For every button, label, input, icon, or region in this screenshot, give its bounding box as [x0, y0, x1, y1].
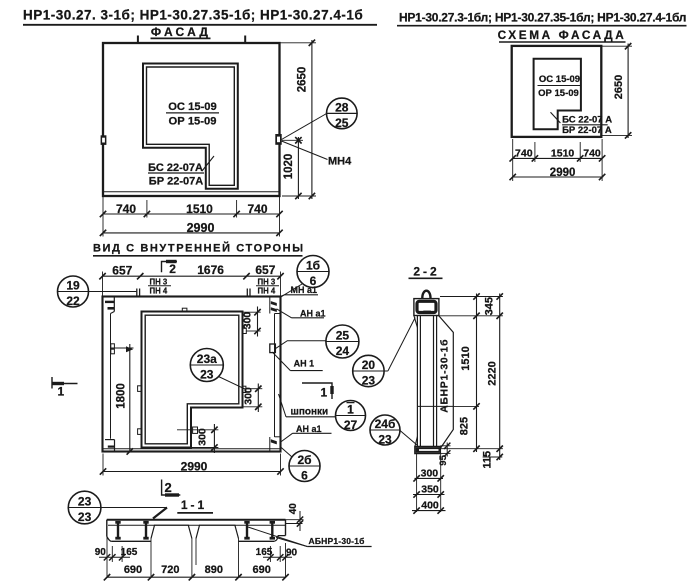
svg-text:ВИД С ВНУТРЕННЕЙ СТОРОНЫ: ВИД С ВНУТРЕННЕЙ СТОРОНЫ [93, 242, 305, 255]
svg-text:2: 2 [169, 262, 176, 276]
svg-text:23: 23 [78, 510, 92, 524]
svg-text:шпонки: шпонки [291, 406, 329, 417]
svg-text:НР1-30.27. 3-1б; НР1-30.27.35: НР1-30.27. 3-1б; НР1-30.27.35-1б; НР1-30… [23, 8, 363, 23]
svg-text:АБНР1-30-1б: АБНР1-30-1б [309, 536, 365, 546]
svg-text:27: 27 [344, 418, 358, 432]
svg-text:1: 1 [321, 386, 328, 400]
svg-text:2: 2 [165, 480, 172, 495]
svg-text:1-1: 1-1 [181, 498, 207, 512]
svg-text:24б: 24б [375, 417, 396, 431]
svg-text:2б: 2б [297, 453, 311, 467]
svg-text:АН а1: АН а1 [300, 308, 326, 318]
svg-text:БС 22-07 А: БС 22-07 А [562, 114, 612, 125]
svg-text:1: 1 [58, 385, 65, 399]
svg-text:740: 740 [116, 202, 136, 216]
svg-text:115: 115 [482, 451, 494, 469]
svg-text:20: 20 [362, 358, 376, 372]
svg-text:90: 90 [95, 547, 107, 558]
svg-text:2990: 2990 [187, 221, 215, 235]
svg-text:АН 1: АН 1 [294, 358, 315, 368]
svg-text:165: 165 [121, 547, 138, 558]
svg-text:1510: 1510 [551, 147, 575, 159]
svg-text:400: 400 [421, 500, 439, 512]
svg-text:740: 740 [247, 202, 267, 216]
svg-text:300: 300 [242, 387, 254, 405]
svg-text:СХЕМА ФАСАДА: СХЕМА ФАСАДА [498, 28, 627, 42]
svg-text:1510: 1510 [460, 346, 472, 370]
svg-text:300: 300 [421, 467, 439, 479]
svg-text:ФАСАД: ФАСАД [151, 25, 211, 39]
svg-text:690: 690 [253, 564, 271, 576]
svg-text:1: 1 [347, 403, 354, 417]
svg-text:23: 23 [362, 374, 376, 388]
svg-text:ОС 15-09: ОС 15-09 [168, 101, 217, 113]
svg-text:ОС 15-09: ОС 15-09 [539, 74, 580, 85]
svg-text:25: 25 [336, 329, 350, 343]
svg-text:1800: 1800 [115, 383, 127, 409]
svg-text:МН4: МН4 [328, 155, 352, 167]
svg-text:2220: 2220 [486, 361, 498, 385]
svg-text:23: 23 [78, 495, 92, 509]
svg-text:19: 19 [66, 279, 80, 293]
svg-text:25: 25 [335, 116, 349, 130]
svg-text:40: 40 [288, 503, 299, 515]
svg-text:890: 890 [205, 564, 223, 576]
svg-text:ОР 15-09: ОР 15-09 [538, 88, 579, 99]
svg-text:ОР 15-09: ОР 15-09 [169, 116, 217, 128]
svg-text:2-2: 2-2 [413, 264, 439, 278]
svg-text:2990: 2990 [181, 460, 208, 474]
svg-text:95: 95 [438, 454, 449, 465]
svg-text:1510: 1510 [186, 202, 213, 216]
svg-text:ПН 3: ПН 3 [258, 277, 276, 286]
svg-text:6: 6 [301, 469, 308, 483]
svg-text:23а: 23а [197, 352, 217, 366]
svg-text:740: 740 [583, 147, 601, 159]
svg-text:657: 657 [255, 263, 275, 277]
svg-text:300: 300 [196, 428, 208, 446]
svg-text:БС 22-07А: БС 22-07А [148, 162, 203, 174]
svg-text:345: 345 [483, 297, 495, 315]
svg-text:ПН 3: ПН 3 [150, 277, 168, 286]
svg-text:165: 165 [256, 547, 273, 558]
svg-text:720: 720 [161, 564, 179, 576]
svg-text:БР 22-07 А: БР 22-07 А [562, 125, 612, 136]
svg-text:ПН 4: ПН 4 [150, 287, 168, 296]
svg-text:1676: 1676 [197, 263, 224, 277]
svg-text:690: 690 [124, 564, 142, 576]
svg-text:28: 28 [335, 100, 349, 114]
svg-text:825: 825 [459, 417, 471, 435]
svg-text:2650: 2650 [297, 67, 309, 93]
svg-text:657: 657 [112, 263, 132, 277]
svg-text:ПН 4: ПН 4 [258, 287, 276, 296]
svg-text:1б: 1б [306, 259, 320, 273]
svg-text:МН а1: МН а1 [291, 285, 318, 295]
svg-text:1020: 1020 [283, 154, 295, 180]
svg-text:90: 90 [286, 547, 298, 558]
svg-text:2990: 2990 [550, 167, 576, 179]
svg-text:АН а1: АН а1 [296, 424, 322, 434]
svg-text:АБНР1-30-1б: АБНР1-30-1б [439, 339, 451, 413]
svg-text:НР1-30.27.3-1бл; НР1-30.27.35-: НР1-30.27.3-1бл; НР1-30.27.35-1бл; НР1-3… [399, 11, 686, 25]
svg-text:23: 23 [200, 368, 214, 382]
svg-text:БР 22-07А: БР 22-07А [149, 176, 203, 188]
svg-text:22: 22 [66, 294, 80, 308]
svg-text:350: 350 [421, 484, 439, 496]
svg-text:2650: 2650 [613, 75, 625, 99]
svg-text:740: 740 [515, 147, 533, 159]
svg-text:300: 300 [242, 312, 254, 330]
svg-text:24: 24 [336, 344, 350, 358]
svg-text:23: 23 [378, 433, 392, 447]
